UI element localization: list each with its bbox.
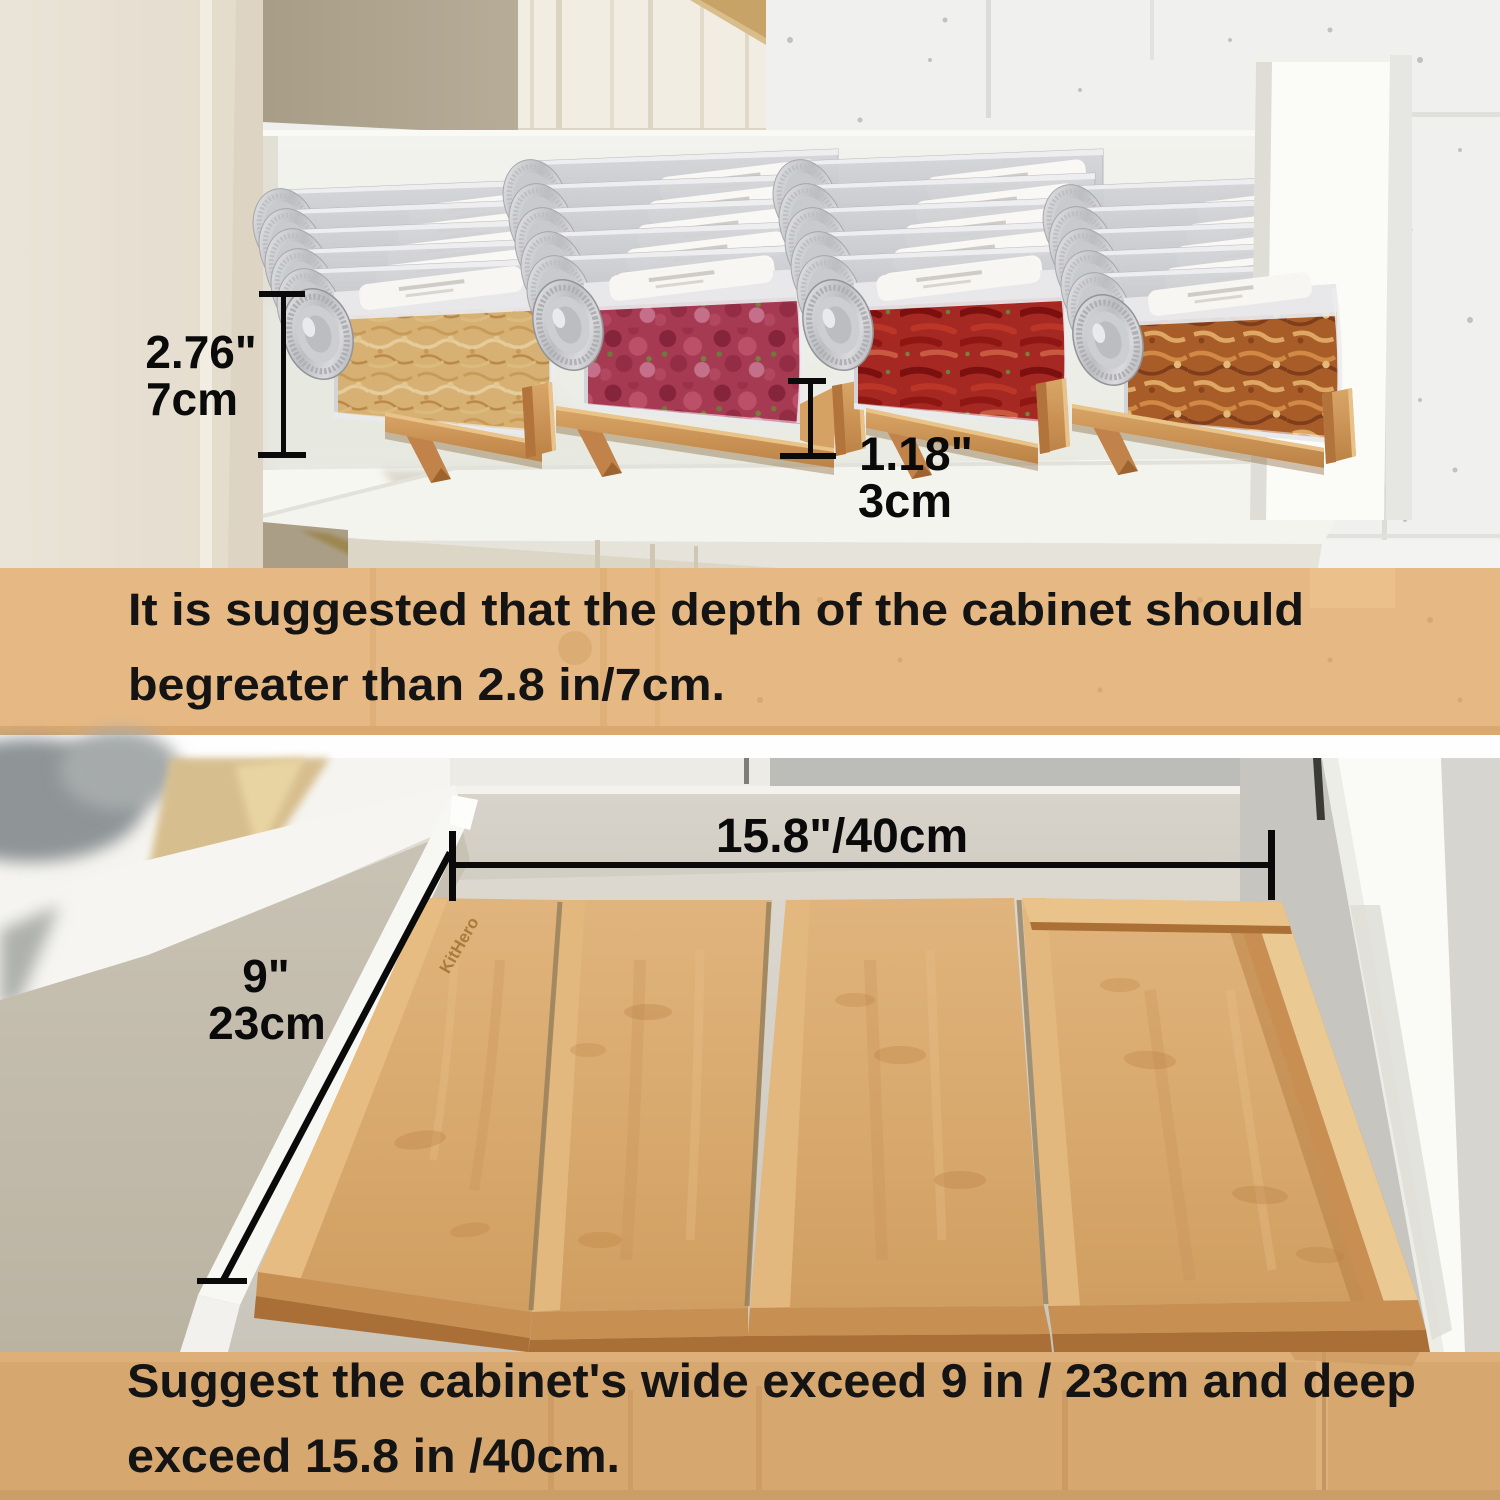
svg-text:begreater than 2.8 in/7cm.: begreater than 2.8 in/7cm. — [128, 659, 725, 710]
svg-text:2.76": 2.76" — [145, 326, 256, 378]
svg-text:1.18": 1.18" — [859, 427, 973, 480]
svg-text:15.8"/40cm: 15.8"/40cm — [716, 810, 968, 863]
svg-text:3cm: 3cm — [858, 474, 952, 527]
svg-text:7cm: 7cm — [146, 373, 238, 425]
svg-text:It is suggested that the depth: It is suggested that the depth of the ca… — [128, 584, 1304, 635]
svg-text:exceed 15.8 in /40cm.: exceed 15.8 in /40cm. — [127, 1429, 620, 1482]
svg-text:Suggest the cabinet's wide exc: Suggest the cabinet's wide exceed 9 in /… — [127, 1354, 1416, 1407]
svg-text:23cm: 23cm — [208, 997, 326, 1049]
svg-text:9": 9" — [242, 950, 289, 1002]
